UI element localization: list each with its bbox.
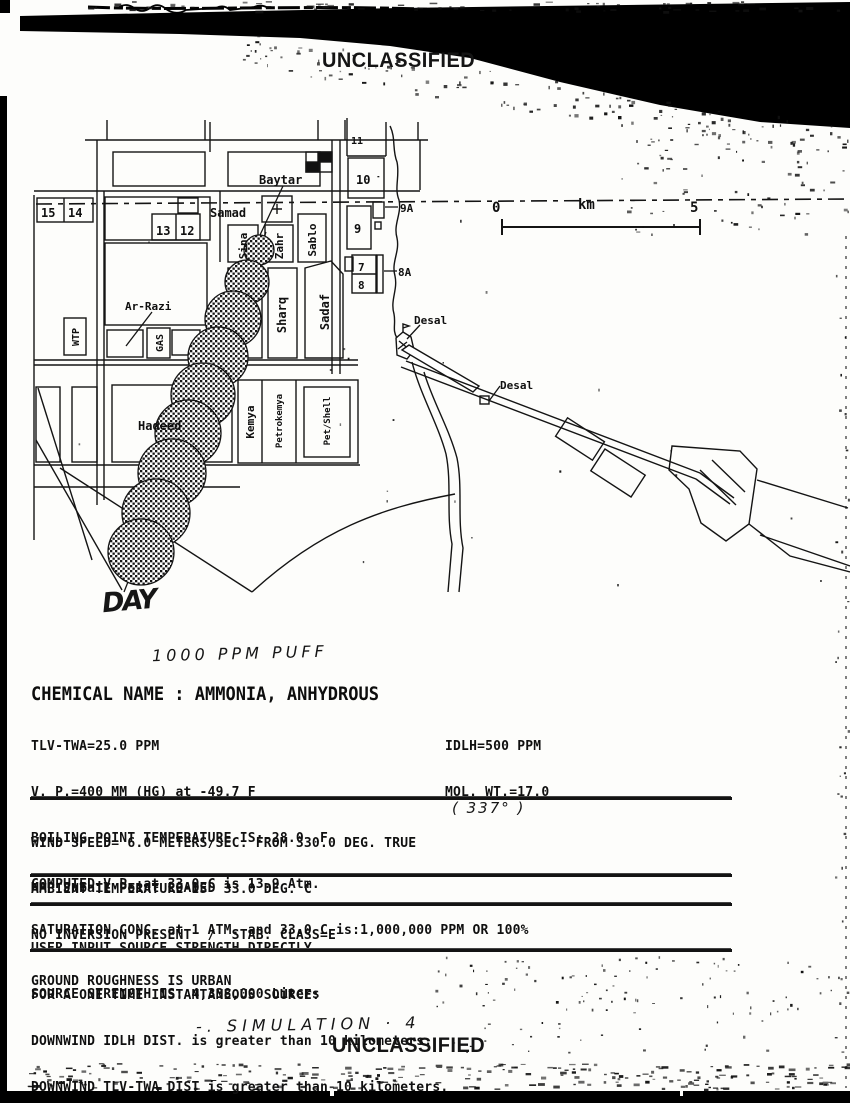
map-label-desal-1: Desal [414, 314, 447, 327]
map-label-13: 13 [156, 224, 170, 238]
map-label-pet-shell: Pet/Shell [323, 397, 333, 446]
dock [556, 418, 605, 460]
ar-razi-pointer [126, 312, 152, 346]
map-reference-line [36, 199, 848, 204]
map-label-14: 14 [68, 206, 82, 220]
map-label-samad: Samad [210, 206, 246, 220]
scale-start-label: 0 [492, 200, 500, 216]
map-label-desal-2: Desal [500, 379, 533, 392]
section-divider [30, 949, 732, 952]
map-label-7: 7 [358, 261, 365, 274]
map-label-12: 12 [180, 224, 194, 238]
map-label-sina: Sina [237, 233, 250, 260]
scanned-document-page: Baytar Samad Sina Zahr Sablo Sharq Sadaf… [0, 0, 850, 1103]
report-line: IDLH=500 PPM [445, 739, 549, 755]
map-label-gas: GAS [155, 334, 166, 352]
map-label-11: 11 [351, 136, 363, 147]
map-label-wtp: WTP [71, 328, 82, 346]
map-label-kemya: Kemya [244, 405, 257, 438]
map-label-sharq: Sharq [275, 297, 289, 333]
header-classification: UNCLASSIFIED [322, 49, 475, 73]
pier [401, 361, 734, 504]
map-label-8: 8 [358, 279, 365, 292]
section-divider [30, 874, 732, 877]
map-status-line: MAP Jubail Point LOADED [31, 881, 216, 896]
map-label-petrokemya: Petrokemya [275, 394, 285, 448]
scale-end-label: 5 [690, 200, 698, 216]
section-divider [30, 797, 732, 800]
block-8a [377, 255, 383, 293]
map-label-15: 15 [41, 206, 55, 220]
map-label-baytar: Baytar [259, 173, 302, 187]
map-label-10: 10 [356, 173, 370, 187]
report-line: FOR A ONE TIME INSTANTANEOUS SOURCE: [31, 988, 472, 1004]
map-label-8a: 8A [398, 266, 412, 279]
report-line: DOWNWIND IDLH DIST. is greater than 10 k… [31, 1034, 472, 1050]
map-labels: Baytar Samad Sina Zahr Sablo Sharq Sadaf… [41, 136, 698, 448]
map-label-sablo: Sablo [306, 223, 319, 256]
desal-pointer-1 [407, 325, 420, 339]
chemical-name-heading: CHEMICAL NAME : AMMONIA, ANHYDROUS [31, 684, 379, 706]
downwind-results: FOR A ONE TIME INSTANTANEOUS SOURCE: DOW… [31, 958, 472, 1103]
section-divider [30, 903, 732, 906]
report-line: DOWNWIND TLV-TWA DIST is greater than 10… [31, 1080, 472, 1096]
handwritten-day-note: DAY [101, 584, 157, 620]
map-label-zahr: Zahr [273, 232, 286, 259]
scale-unit-label: km [578, 197, 595, 213]
map-label-ar-razi: Ar-Razi [125, 300, 172, 313]
map-label-hadeed: Hadeed [138, 419, 181, 433]
map-label-9: 9 [354, 222, 361, 236]
block-9a [373, 202, 384, 218]
coastline [390, 126, 850, 592]
report-line: WIND SPEED= 6.0 METERS/SEC. FROM 330.0 D… [31, 836, 416, 852]
map-jubail-point: Baytar Samad Sina Zahr Sablo Sharq Sadaf… [34, 118, 850, 592]
map-label-sadaf: Sadaf [318, 294, 332, 330]
scale-bar [502, 219, 700, 235]
map-label-9a: 9A [400, 202, 414, 215]
